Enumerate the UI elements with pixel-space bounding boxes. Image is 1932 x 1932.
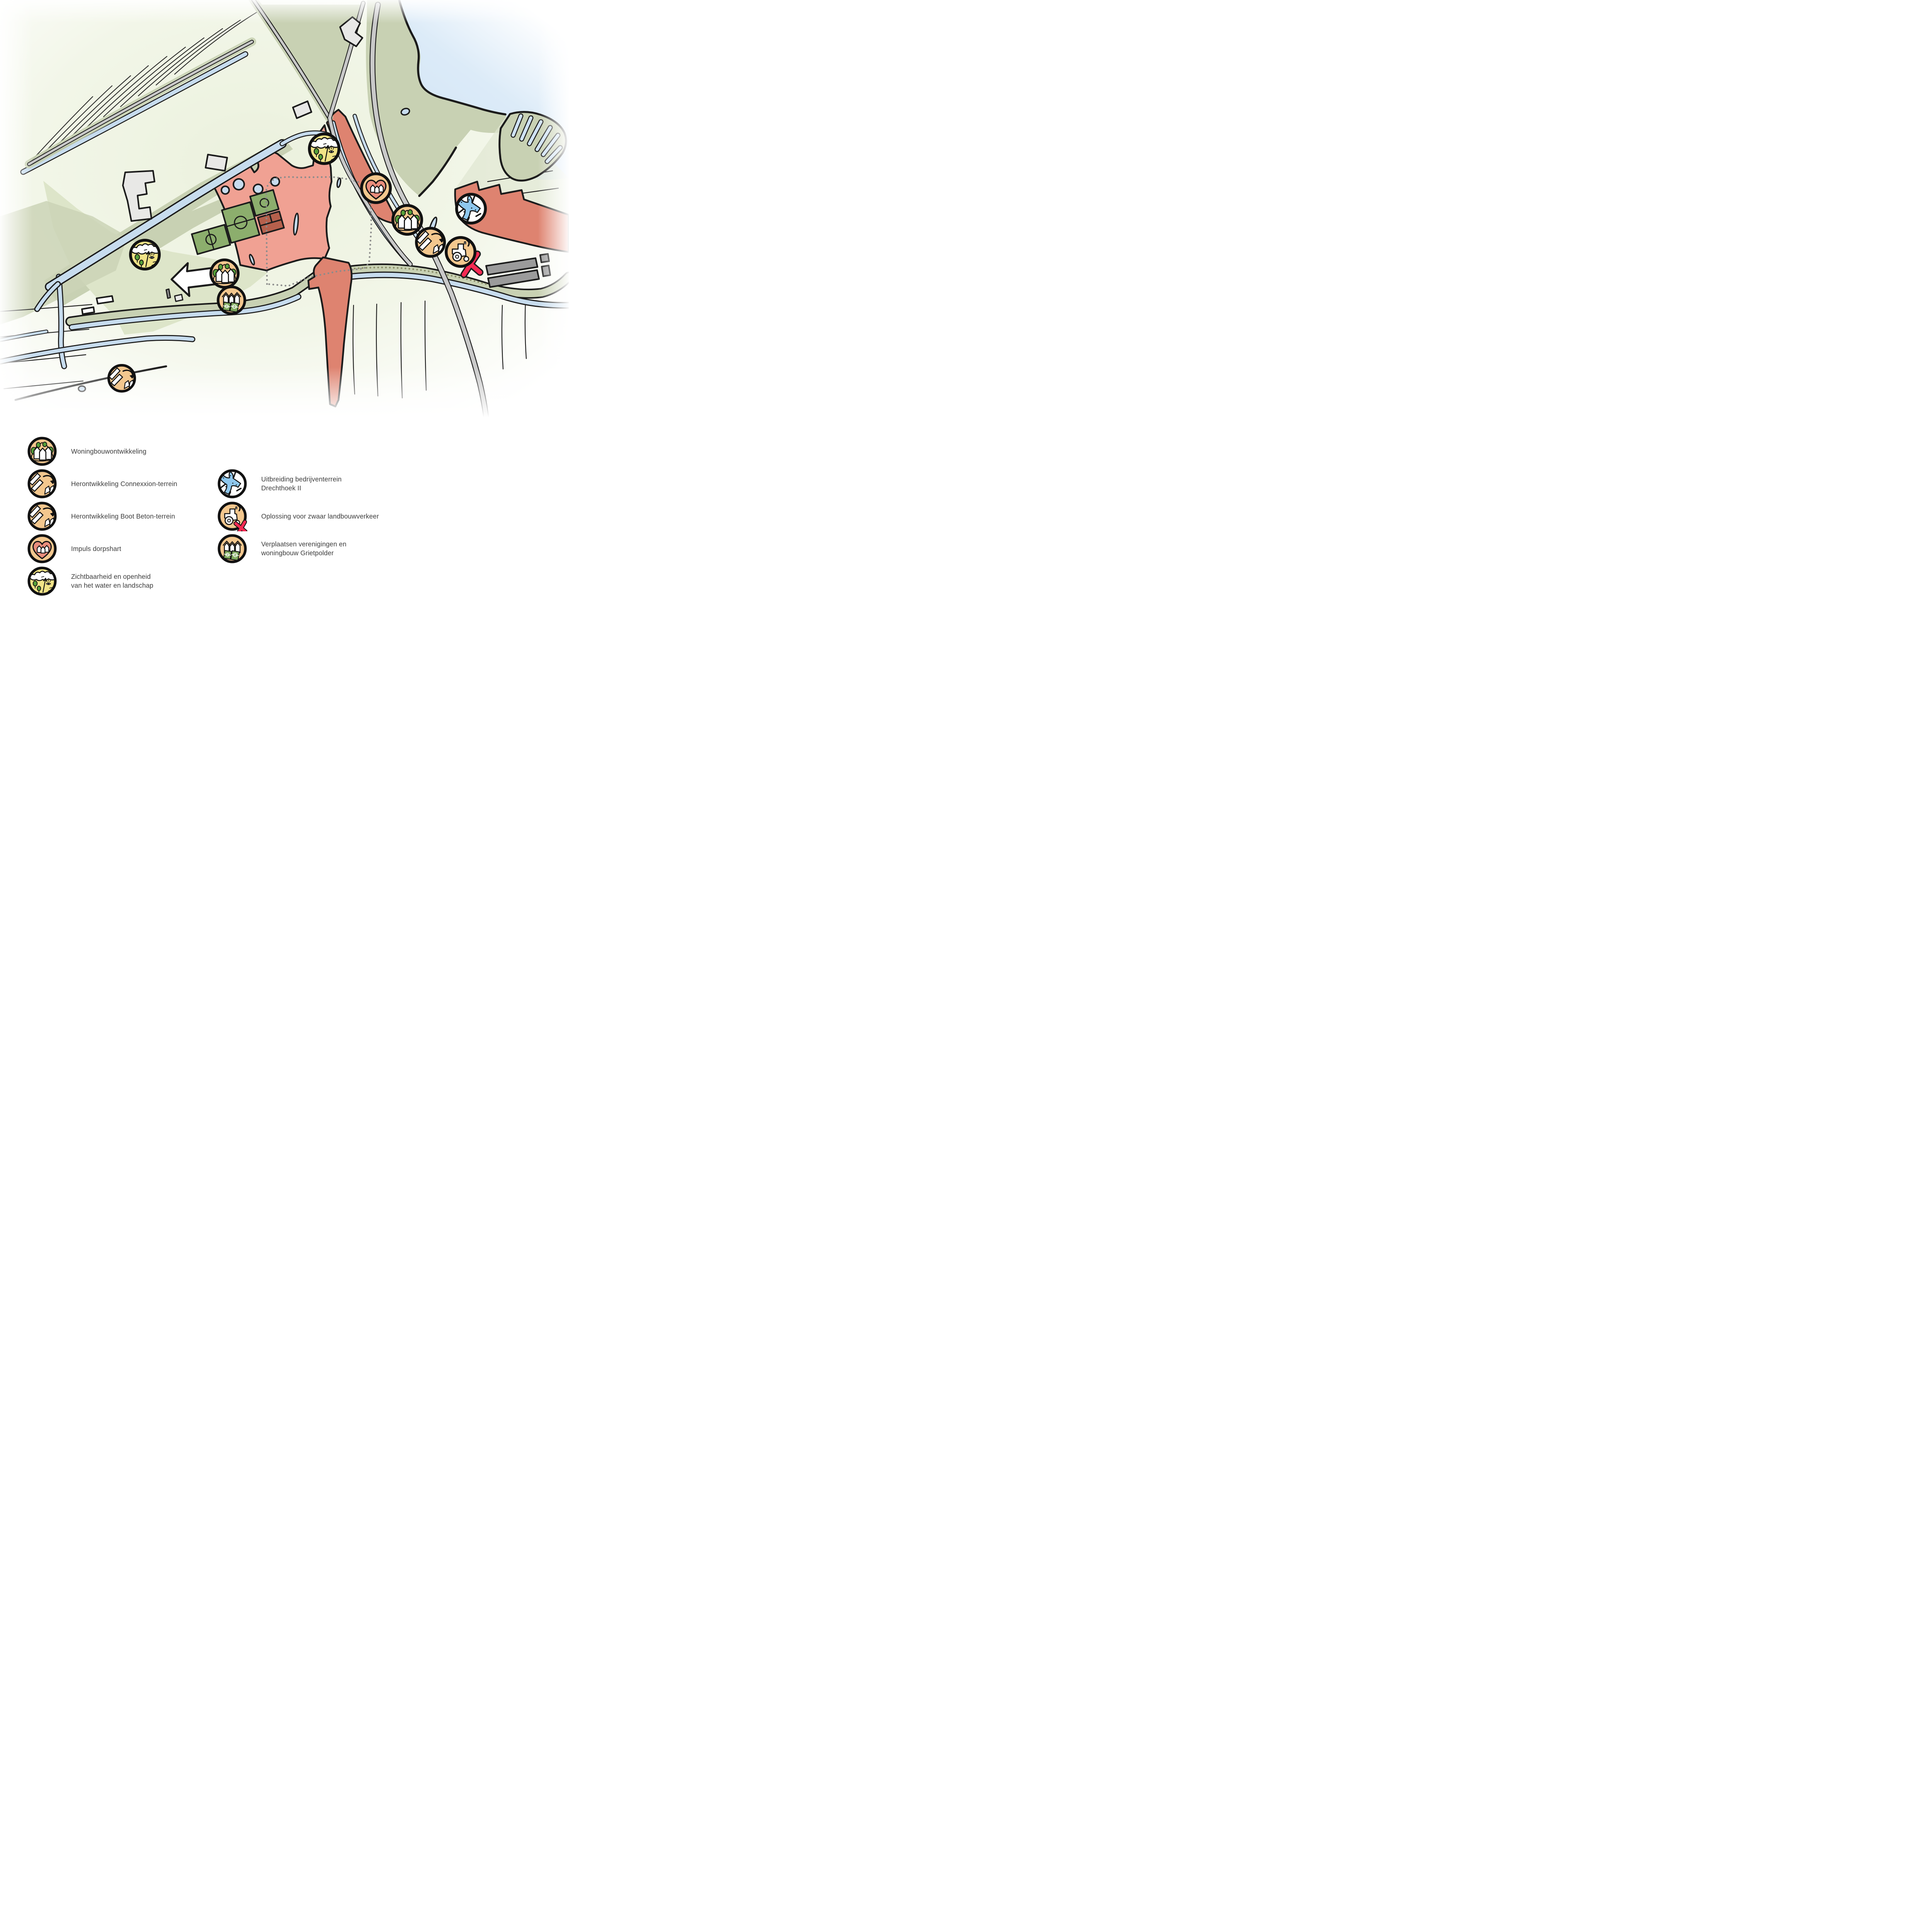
woningbouw-marker [211, 260, 238, 287]
legend-item-zichtbaarheid: Zichtbaarheid en openheid van het water … [27, 565, 177, 597]
legend: Woningbouwontwikkeling Herontwikkeling C… [0, 435, 569, 609]
legend-label: Zichtbaarheid en openheid van het water … [71, 572, 153, 590]
drechthoek-marker [457, 194, 486, 223]
page: { "legend": { "left": [ {"icon":"woningb… [0, 0, 569, 609]
legend-label: Uitbreiding bedrijventerrein Drechthoek … [261, 475, 342, 492]
legend-label: Herontwikkeling Connexxion-terrein [71, 480, 177, 488]
no-heavy-traffic-icon [217, 501, 247, 531]
legend-item-boot-beton: Herontwikkeling Boot Beton-terrein [27, 500, 177, 532]
legend-item-landbouwverkeer: Oplossing voor zwaar landbouwverkeer [217, 500, 379, 532]
redevelopment-icon [27, 501, 57, 531]
woningbouw-marker [393, 206, 422, 235]
heart-marker [362, 174, 391, 203]
legend-label: Herontwikkeling Boot Beton-terrein [71, 512, 175, 521]
legend-column-left: Woningbouwontwikkeling Herontwikkeling C… [27, 435, 177, 597]
village-heart-icon [27, 534, 57, 564]
open-landscape-icon [27, 566, 57, 596]
legend-item-drechthoek: Uitbreiding bedrijventerrein Drechthoek … [217, 468, 379, 500]
legend-item-grietpolder: Verplaatsen verenigingen en woningbouw G… [217, 532, 379, 565]
legend-item-connexxion: Herontwikkeling Connexxion-terrein [27, 468, 177, 500]
tractor-marker [446, 238, 475, 267]
legend-item-dorpshart: Impuls dorpshart [27, 532, 177, 565]
relocate-clubs-icon [217, 534, 247, 564]
plan-map-container [0, 0, 569, 417]
landscape-marker [310, 134, 339, 163]
herontwikkeling-marker [109, 365, 134, 391]
landscape-marker [131, 240, 160, 269]
legend-item-woningbouw: Woningbouwontwikkeling [27, 435, 177, 468]
housing-development-icon [27, 436, 57, 466]
plan-map [0, 0, 569, 417]
business-park-water-icon [217, 469, 247, 499]
grietpolder-marker [218, 287, 245, 313]
redevelopment-icon [27, 469, 57, 499]
herontwikkeling-marker [417, 228, 445, 257]
legend-label: Oplossing voor zwaar landbouwverkeer [261, 512, 379, 521]
legend-label: Verplaatsen verenigingen en woningbouw G… [261, 540, 347, 557]
legend-label: Impuls dorpshart [71, 544, 121, 553]
legend-label: Woningbouwontwikkeling [71, 447, 146, 456]
legend-column-right: Uitbreiding bedrijventerrein Drechthoek … [217, 468, 379, 565]
